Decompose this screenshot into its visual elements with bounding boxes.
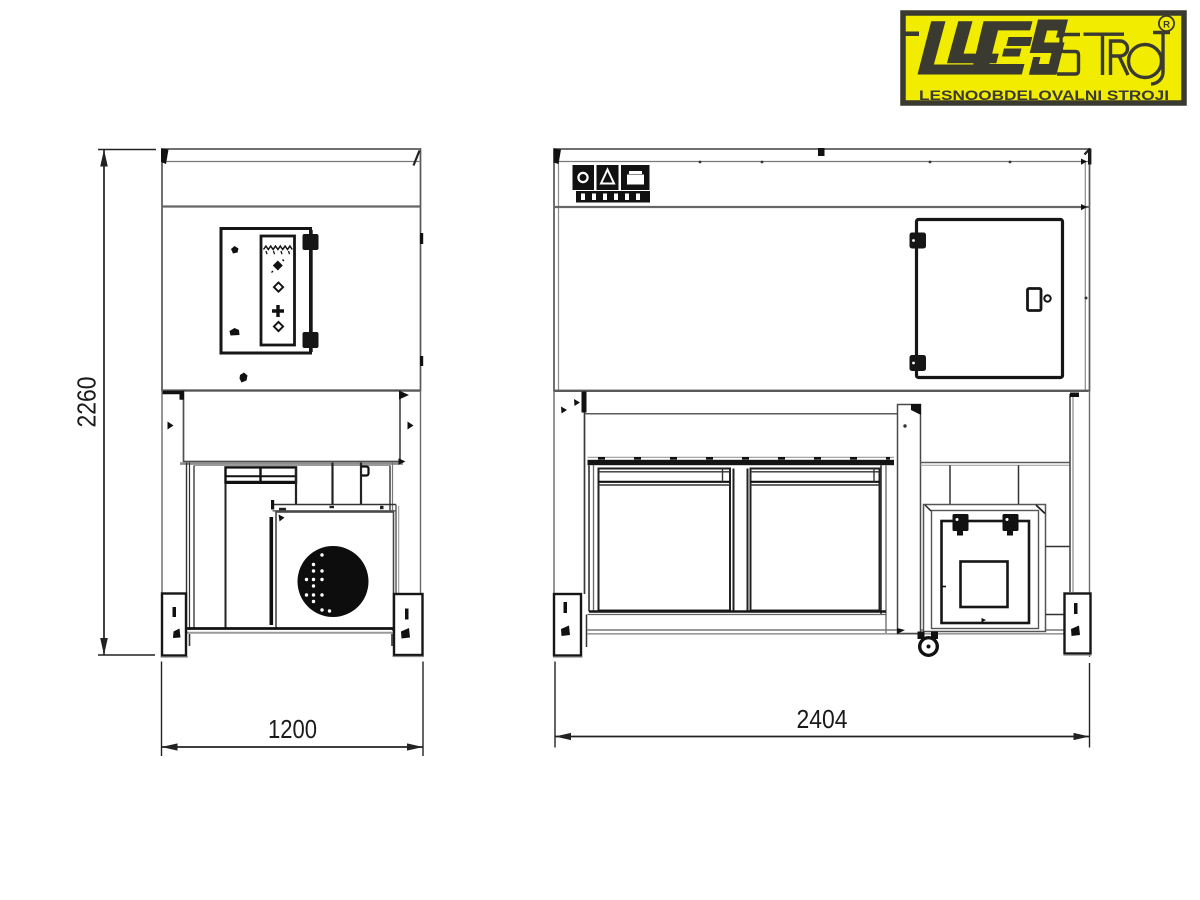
- svg-text:R: R: [1163, 19, 1170, 30]
- svg-text:2404: 2404: [797, 704, 848, 734]
- svg-text:LESNOOBDELOVALNI STROJI: LESNOOBDELOVALNI STROJI: [919, 88, 1169, 103]
- svg-text:1200: 1200: [268, 714, 317, 744]
- svg-text:2260: 2260: [72, 377, 102, 428]
